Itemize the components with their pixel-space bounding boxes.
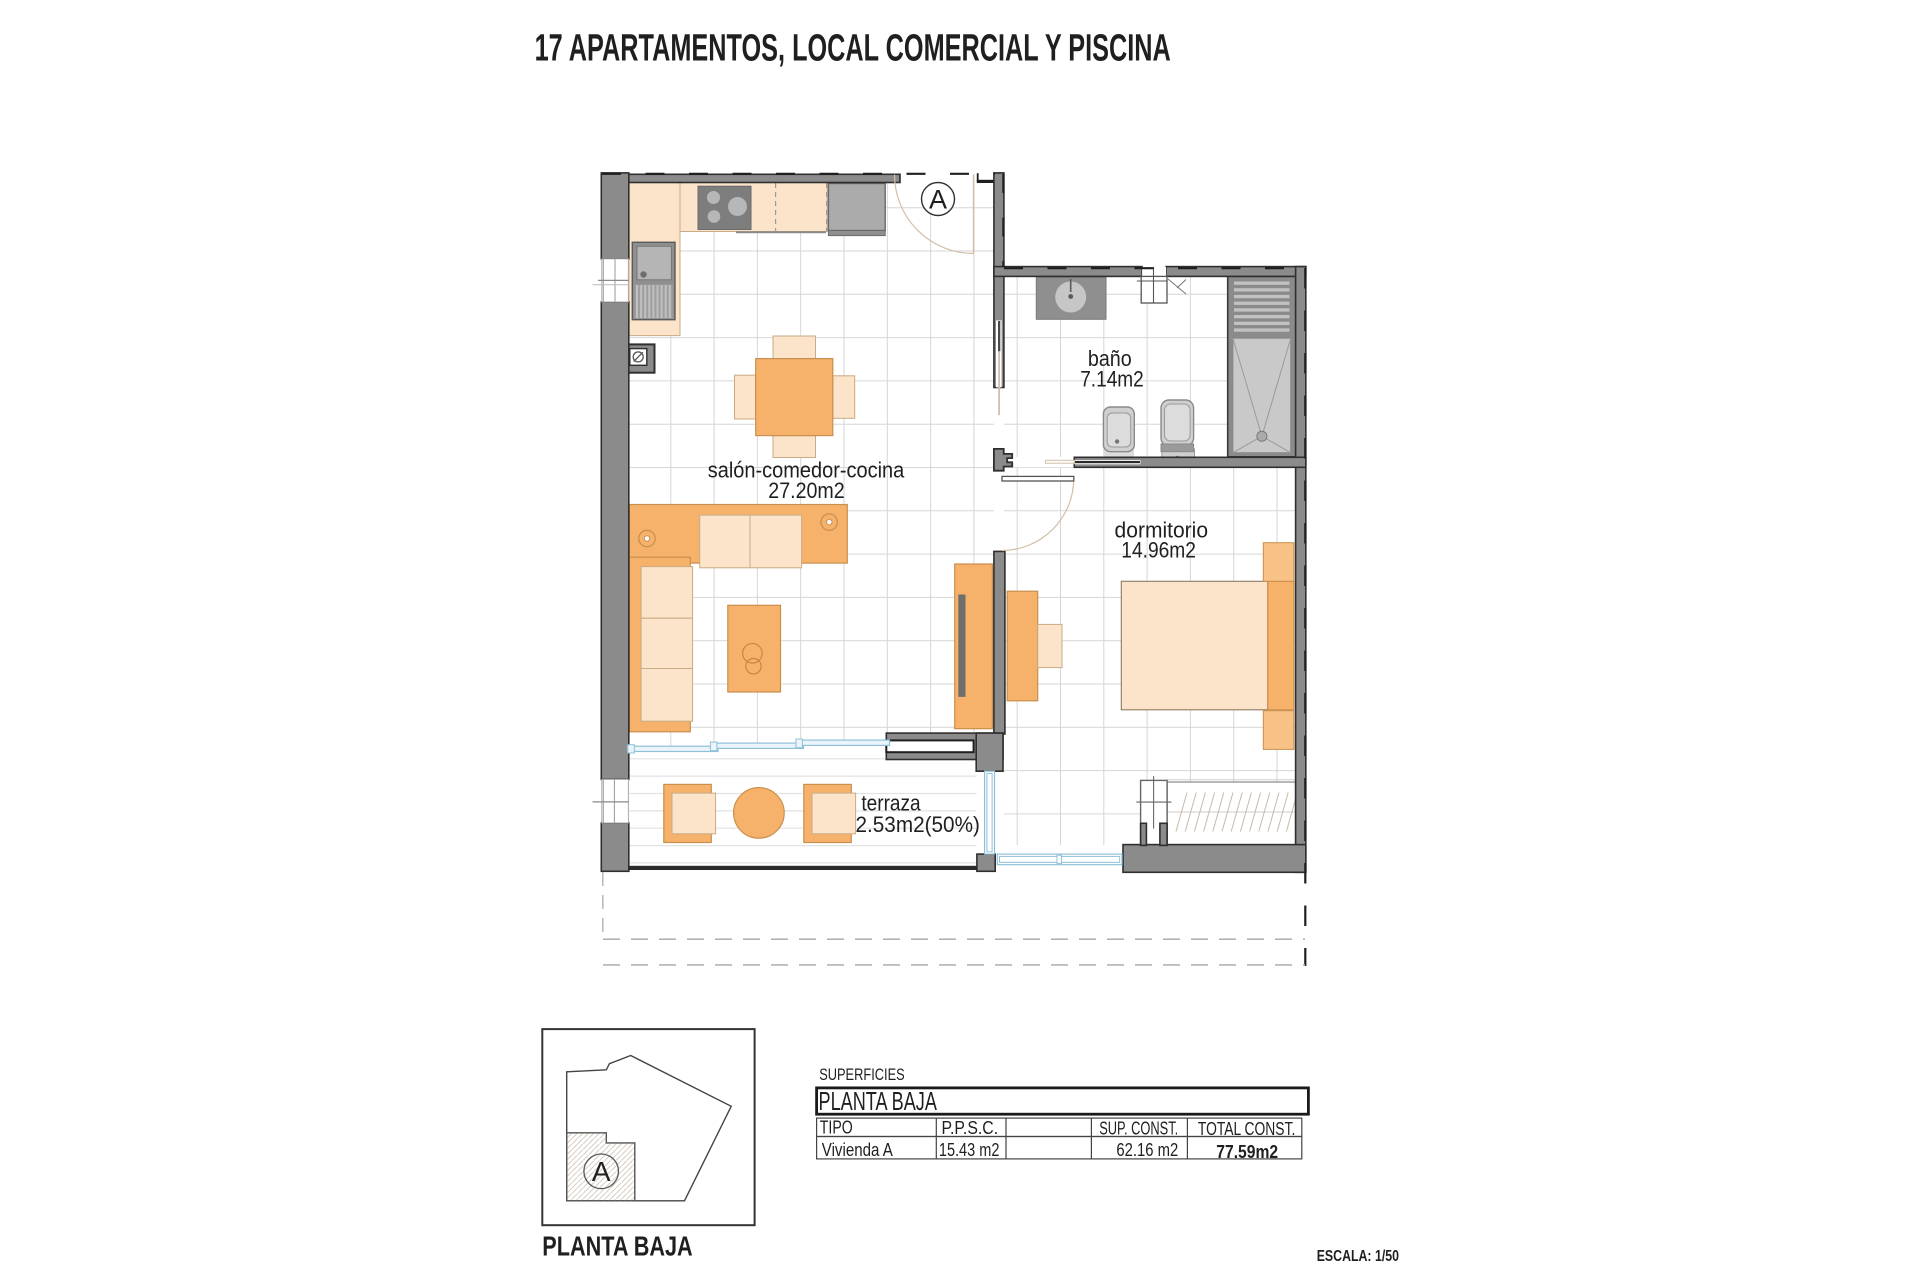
svg-text:ESCALA: 1/50: ESCALA: 1/50 (1317, 1248, 1399, 1265)
svg-text:P.P.S.C.: P.P.S.C. (942, 1118, 999, 1138)
svg-text:TIPO: TIPO (820, 1118, 853, 1138)
svg-text:Vivienda A: Vivienda A (822, 1140, 893, 1160)
svg-text:77.59m2: 77.59m2 (1216, 1141, 1278, 1162)
svg-text:PLANTA BAJA: PLANTA BAJA (819, 1088, 937, 1116)
svg-text:14.96m2: 14.96m2 (1121, 537, 1196, 562)
svg-text:15.43 m2: 15.43 m2 (939, 1140, 1000, 1160)
svg-text:7.14m2: 7.14m2 (1080, 366, 1144, 391)
svg-text:A: A (592, 1156, 611, 1187)
svg-text:A: A (929, 185, 947, 215)
svg-text:2.53m2(50%): 2.53m2(50%) (856, 812, 980, 837)
svg-text:TOTAL CONST.: TOTAL CONST. (1198, 1119, 1295, 1139)
svg-text:PLANTA BAJA: PLANTA BAJA (542, 1231, 692, 1262)
svg-text:17 APARTAMENTOS, LOCAL COMERCI: 17 APARTAMENTOS, LOCAL COMERCIAL Y PISCI… (535, 28, 1171, 70)
svg-text:SUPERFICIES: SUPERFICIES (819, 1066, 905, 1084)
svg-text:SUP. CONST.: SUP. CONST. (1099, 1119, 1178, 1139)
svg-text:62.16 m2: 62.16 m2 (1116, 1140, 1178, 1160)
svg-text:27.20m2: 27.20m2 (768, 478, 844, 503)
